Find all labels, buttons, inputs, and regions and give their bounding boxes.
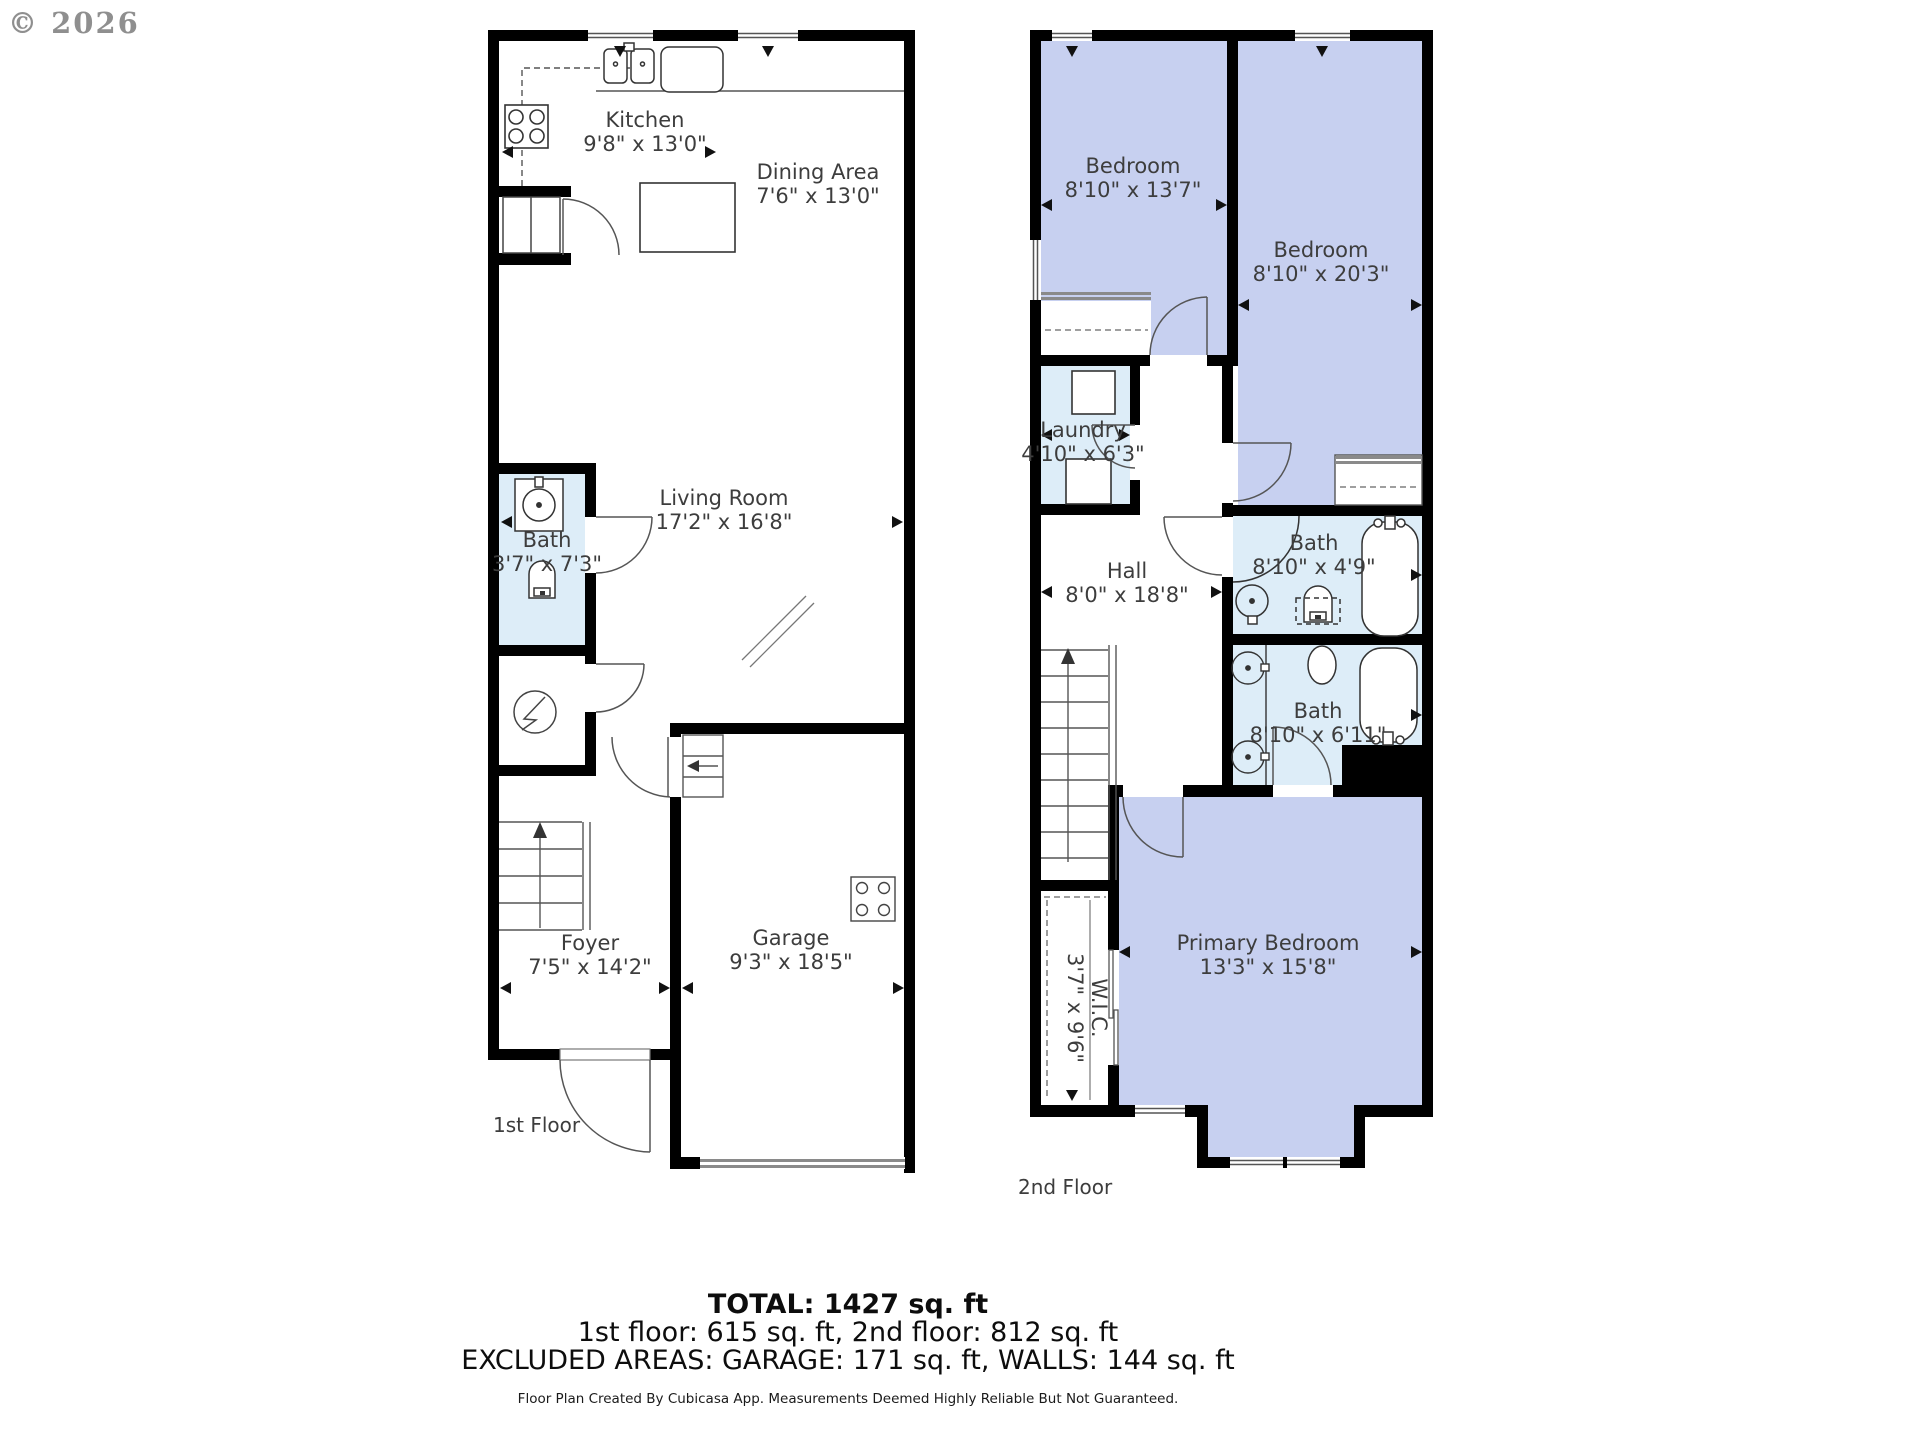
window-bay-2 (1287, 1157, 1340, 1168)
room-label-hall: Hall 8'0" x 18'8" (1065, 559, 1188, 607)
disclaimer: Floor Plan Created By Cubicasa App. Meas… (461, 1391, 1234, 1407)
room-label-bedroom2: Bedroom 8'10" x 20'3" (1253, 238, 1390, 286)
room-dims: 17'2" x 16'8" (656, 510, 793, 534)
room-name: Bedroom (1065, 154, 1202, 178)
room-dims: 8'10" x 20'3" (1253, 262, 1390, 286)
kitchen-sink (604, 43, 654, 83)
room-dims: 4'10" x 6'3" (1021, 442, 1144, 466)
room-name: Bedroom (1253, 238, 1390, 262)
room-label-garage: Garage 9'3" x 18'5" (729, 926, 852, 974)
room-dims: 7'5" x 14'2" (528, 955, 651, 979)
room-dims: 3'7" x 7'3" (492, 552, 602, 576)
room-name: Laundry (1021, 418, 1144, 442)
window-kitchen-1 (588, 30, 653, 41)
refrigerator (661, 47, 723, 92)
room-label-dining: Dining Area 7'6" x 13'0" (756, 160, 879, 208)
void-block (1342, 745, 1433, 787)
room-label-kitchen: Kitchen 9'8" x 13'0" (583, 108, 706, 156)
washer (1072, 371, 1115, 414)
room-label-primary: Primary Bedroom 13'3" x 15'8" (1177, 931, 1360, 979)
room-dims: 3'7" x 9'6" (1063, 953, 1087, 1063)
garage-entry-door (612, 737, 670, 797)
room-dims: 8'10" x 6'11" (1250, 723, 1387, 747)
first-floor-label: 1st Floor (493, 1113, 580, 1137)
room-label-bedroom1: Bedroom 8'10" x 13'7" (1065, 154, 1202, 202)
room-name: Bath (1252, 531, 1375, 555)
room-name: Bath (492, 528, 602, 552)
window-primary-bottom (1135, 1105, 1185, 1117)
dining-table (640, 183, 735, 252)
bath1f-door (596, 517, 652, 573)
bath2-toilet (1308, 646, 1336, 684)
stove (505, 105, 548, 148)
garage-step-landing (683, 735, 723, 797)
staircase-1f (499, 822, 590, 930)
bedroom2-closet (1335, 455, 1422, 505)
room-name: W.I.C. (1087, 953, 1111, 1063)
floorplan-drawing (0, 0, 1920, 1440)
room-dims: 9'8" x 13'0" (583, 132, 706, 156)
room-fills (499, 41, 1433, 1157)
room-name: Hall (1065, 559, 1188, 583)
room-name: Kitchen (583, 108, 706, 132)
room-name: Living Room (656, 486, 793, 510)
cabinet-door (563, 199, 619, 255)
room-dims: 8'10" x 13'7" (1065, 178, 1202, 202)
room-dims: 8'10" x 4'9" (1252, 555, 1375, 579)
bathroom1f-sink (515, 477, 563, 531)
room-dims: 13'3" x 15'8" (1177, 955, 1360, 979)
water-heater (514, 691, 556, 733)
garage-door (700, 1157, 905, 1169)
room-dims: 8'0" x 18'8" (1065, 583, 1188, 607)
room-label-laundry: Laundry 4'10" x 6'3" (1021, 418, 1144, 466)
room-label-bath-lower: Bath 8'10" x 6'11" (1250, 699, 1387, 747)
room-label-wic: W.I.C. 3'7" x 9'6" (1063, 953, 1111, 1063)
stair-break-lines (742, 596, 814, 667)
room-dims: 9'3" x 18'5" (729, 950, 852, 974)
room-dims: 7'6" x 13'0" (756, 184, 879, 208)
garage-utility (851, 877, 895, 921)
floor-areas: 1st floor: 615 sq. ft, 2nd floor: 812 sq… (461, 1319, 1234, 1347)
window-bay-1 (1230, 1157, 1283, 1168)
window-bedroom2-top (1295, 30, 1350, 41)
hall-cabinet (503, 197, 560, 253)
window-bedroom1-top (1052, 30, 1092, 41)
room-label-bath1f: Bath 3'7" x 7'3" (492, 528, 602, 576)
staircase-2f (1041, 645, 1116, 880)
window-bedroom1-left (1030, 240, 1041, 300)
room-label-foyer: Foyer 7'5" x 14'2" (528, 931, 651, 979)
room-label-living: Living Room 17'2" x 16'8" (656, 486, 793, 534)
window-kitchen-2 (738, 30, 798, 41)
second-floor-label: 2nd Floor (1018, 1175, 1112, 1199)
closet1f-door (596, 664, 644, 712)
front-entry-door (560, 1060, 650, 1152)
entry-threshold (560, 1049, 650, 1060)
room-name: Bath (1250, 699, 1387, 723)
total-area: TOTAL: 1427 sq. ft (461, 1291, 1234, 1319)
room-name: Dining Area (756, 160, 879, 184)
room-name: Primary Bedroom (1177, 931, 1360, 955)
room-name: Garage (729, 926, 852, 950)
room-name: Foyer (528, 931, 651, 955)
area-summary: TOTAL: 1427 sq. ft 1st floor: 615 sq. ft… (461, 1291, 1234, 1407)
floorplan-page: © 2026 Kitchen 9'8" x 13'0" Dining Area … (0, 0, 1920, 1440)
room-label-bath-upper: Bath 8'10" x 4'9" (1252, 531, 1375, 579)
copyright-watermark: © 2026 (8, 6, 140, 40)
excluded-areas: EXCLUDED AREAS: GARAGE: 171 sq. ft, WALL… (461, 1347, 1234, 1375)
